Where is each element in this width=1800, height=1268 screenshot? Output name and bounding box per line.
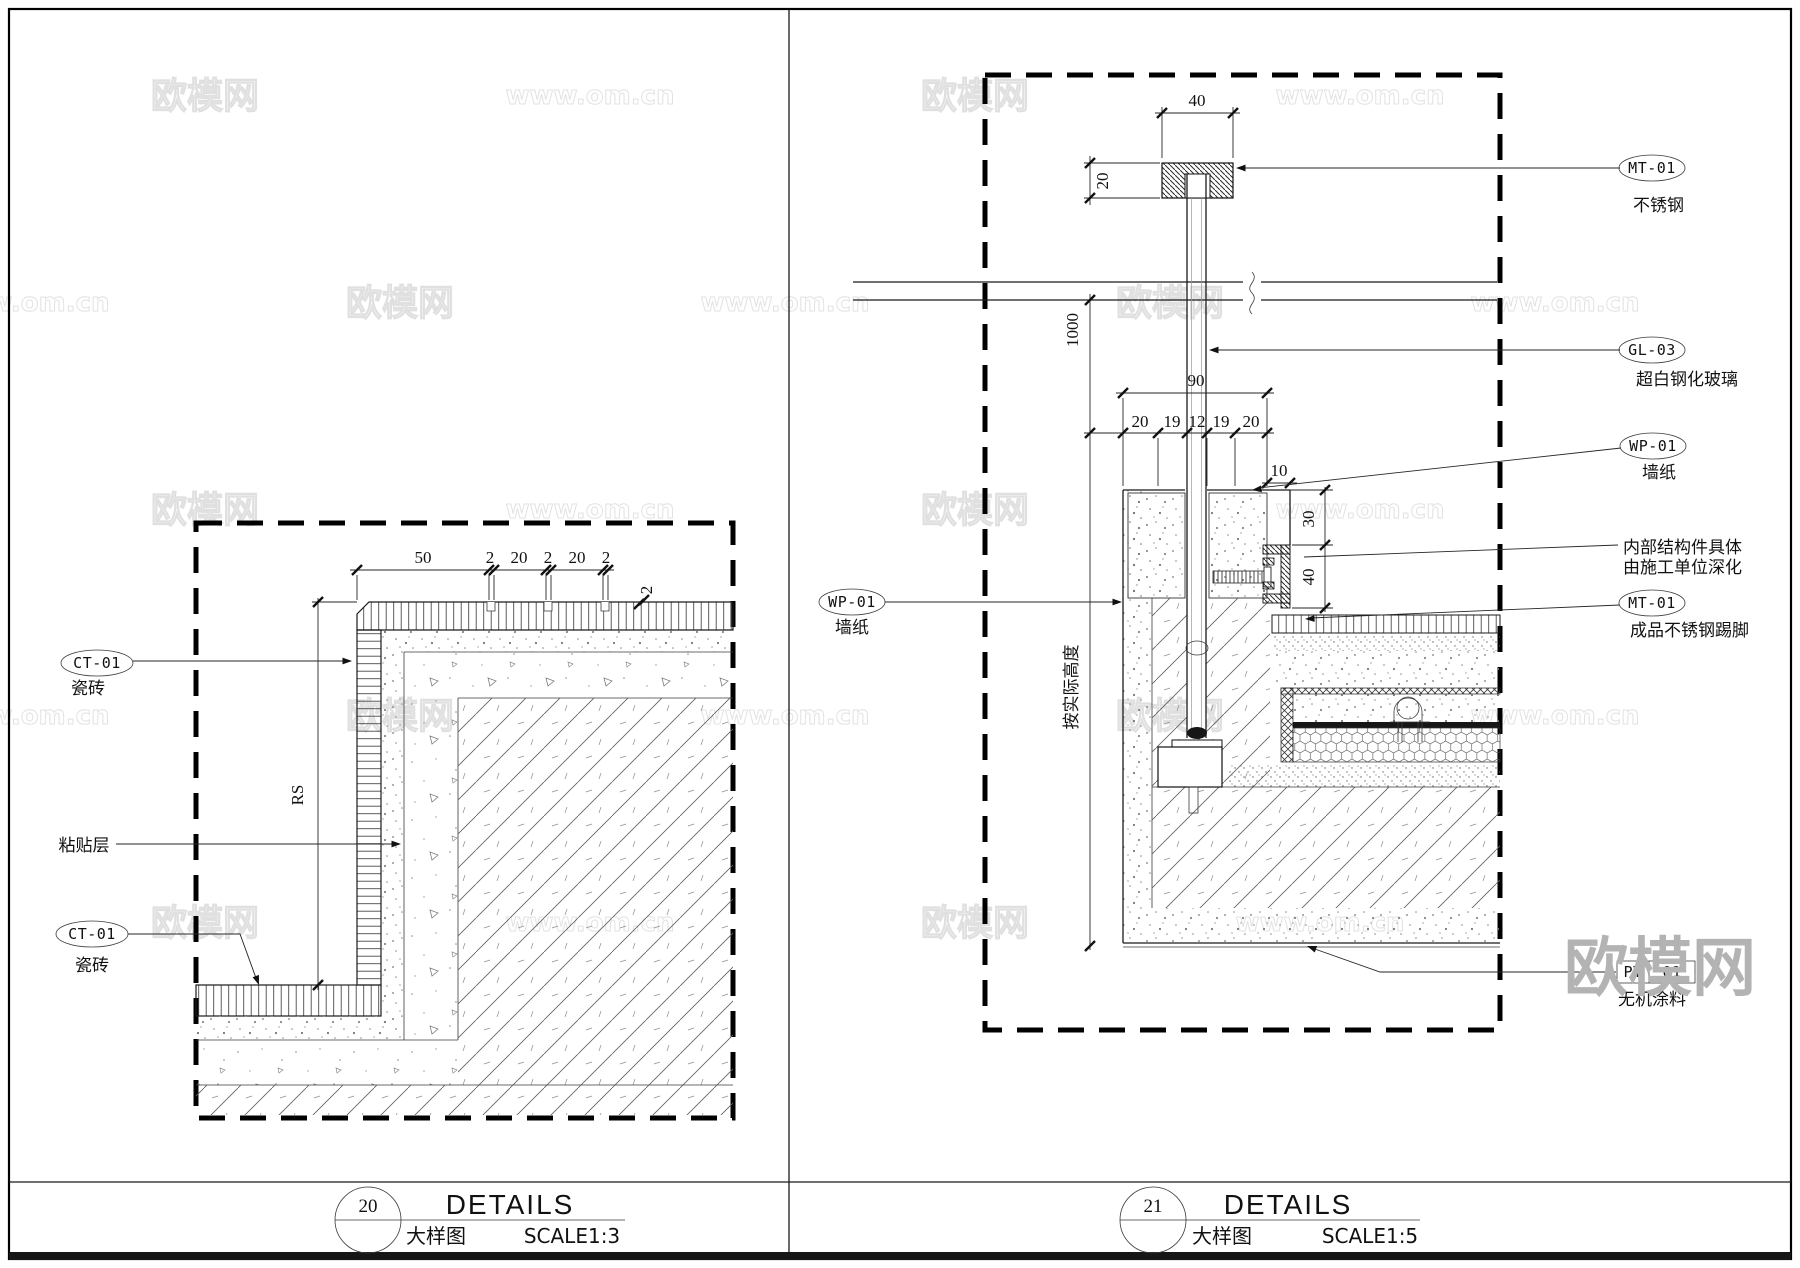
watermark-brand: 欧模网 (921, 490, 1029, 531)
titleblock-20: 20 DETAILS 大样图 SCALE1:3 (335, 1187, 625, 1253)
structure-hatch (458, 698, 733, 1085)
callout-code: GL-03 (1628, 341, 1676, 359)
substrate-band-bottom (196, 1040, 458, 1085)
membrane-edge-strip (1281, 688, 1293, 762)
sand-cushion-band (1228, 765, 1500, 787)
detail-number: 21 (1144, 1196, 1163, 1217)
dim-c4: 19 (1213, 412, 1230, 431)
detail-20-corner-tile: 50 2 20 2 20 2 2 RS CT-01 瓷砖 (56, 523, 733, 1118)
detail-scale: SCALE1:3 (524, 1224, 620, 1248)
callout-wp01-right: WP-01 墙纸 (1252, 433, 1686, 493)
tile-side-strip (357, 630, 381, 985)
dim-cap-height: 20 (1093, 173, 1112, 190)
brand-logo: 欧模网 (1564, 932, 1756, 1006)
dim-chain-top: 50 2 20 2 20 2 2 (350, 548, 656, 609)
dim-10: 10 (1271, 461, 1288, 480)
callout-code: WP-01 (828, 593, 876, 611)
callout-code: MT-01 (1628, 159, 1676, 177)
tile-bottom-strip (196, 985, 381, 1016)
dim-actual-height: 按实际高度 (1062, 645, 1082, 730)
callout-code: WP-01 (1629, 437, 1677, 455)
detail-title: DETAILS (446, 1189, 575, 1220)
dim-40: 40 (1299, 569, 1318, 586)
dim-2: 2 (486, 548, 495, 567)
skirting-strip (1272, 615, 1500, 633)
watermark-brand: 欧模网 (151, 903, 259, 944)
watermark-brand: 欧模网 (346, 283, 454, 324)
callout-name: 瓷砖 (75, 956, 109, 976)
dim-c2: 19 (1164, 412, 1181, 431)
dim-cap-width: 40 (1189, 91, 1206, 110)
membrane-top-band (1281, 688, 1500, 694)
detail-21-glass-partition: 40 20 1000 按实际高度 90 (819, 75, 1749, 1030)
dim-c1: 20 (1132, 412, 1149, 431)
structure-hatch-bottom (196, 1085, 733, 1115)
callout-code: MT-01 (1628, 594, 1676, 612)
structure-under-floor (1152, 787, 1500, 908)
watermark-brand: 欧模网 (1116, 283, 1224, 324)
note-line1: 内部结构件具体 (1623, 538, 1742, 558)
dim-1000: 1000 (1063, 313, 1082, 347)
watermark-site: www.om.cn (1275, 81, 1444, 111)
callout-internal-note: 内部结构件具体 由施工单位深化 (1304, 538, 1742, 578)
callout-name: 粘贴层 (59, 836, 110, 856)
detail-title: DETAILS (1224, 1189, 1353, 1220)
titleblock-21: 21 DETAILS 大样图 SCALE1:5 (1120, 1187, 1420, 1253)
detail-subtitle: 大样图 (406, 1224, 466, 1248)
callout-adhesive: 粘贴层 (59, 836, 402, 856)
base-shoe-block (1158, 747, 1222, 787)
leveling-band (1272, 633, 1500, 651)
callout-name: 墙纸 (835, 618, 869, 638)
dim-2: 2 (544, 548, 553, 567)
watermark-brand: 欧模网 (921, 903, 1029, 944)
waterproof-band (1293, 722, 1500, 728)
detail-scale: SCALE1:5 (1322, 1224, 1418, 1248)
detail-number: 20 (359, 1196, 378, 1217)
callout-code: CT-01 (73, 654, 121, 672)
dim-tile-thickness: 2 (637, 586, 656, 595)
sealant-pad (1187, 727, 1207, 739)
callout-name: 瓷砖 (71, 679, 105, 699)
adhesive-layer-side (381, 630, 404, 1040)
watermark-brand: 欧模网 (921, 76, 1029, 117)
base-plate (1172, 740, 1222, 747)
threaded-anchor (1213, 571, 1265, 583)
pocket-block-left (1128, 493, 1185, 598)
adhesive-layer-bottom (196, 1016, 404, 1040)
watermark-site: www.om.cn (505, 81, 674, 111)
dim-2: 2 (602, 548, 611, 567)
dim-30: 30 (1299, 511, 1318, 528)
dim-50: 50 (415, 548, 432, 567)
substrate-band-top (404, 652, 733, 698)
watermark-site: www.om.cn (700, 288, 869, 318)
callout-ct01-top: CT-01 瓷砖 (61, 650, 352, 699)
callout-name: 超白钢化玻璃 (1636, 370, 1738, 390)
dim-c3: 12 (1189, 412, 1206, 431)
callout-name: 墙纸 (1642, 463, 1676, 483)
top-cap (1162, 163, 1233, 198)
drawing-canvas: 欧模网 www.om.cn 欧模网 www.om.cn www.om.cn 欧模… (0, 0, 1800, 1268)
watermark-site: www.om.cn (0, 701, 110, 731)
callout-name: 成品不锈钢踢脚 (1630, 621, 1749, 641)
cad-sheet: 欧模网 www.om.cn 欧模网 www.om.cn www.om.cn 欧模… (0, 0, 1800, 1268)
screed-band (1272, 651, 1500, 688)
substrate-band-side (404, 698, 458, 1040)
callout-wp01-left: WP-01 墙纸 (819, 589, 1122, 638)
watermark-brand: 欧模网 (151, 76, 259, 117)
callout-name: 不锈钢 (1633, 196, 1684, 216)
detail-subtitle: 大样图 (1192, 1224, 1252, 1248)
floor-wrap-band (1152, 908, 1500, 943)
watermark-site: www.om.cn (1470, 288, 1639, 318)
dim-90: 90 (1188, 371, 1205, 390)
dim-20: 20 (569, 548, 586, 567)
dim-20: 20 (511, 548, 528, 567)
callout-mt01-top: MT-01 不锈钢 (1236, 155, 1685, 216)
insulation-honeycomb (1293, 728, 1500, 762)
callout-gl03: GL-03 超白钢化玻璃 (1209, 337, 1738, 390)
callout-code: CT-01 (68, 925, 116, 943)
adhesive-layer-top (381, 630, 733, 652)
watermark-site: www.om.cn (0, 288, 110, 318)
dim-rs-label: RS (288, 785, 307, 806)
note-line2: 由施工单位深化 (1623, 558, 1742, 578)
fill-band (1293, 694, 1500, 722)
titlebar-heavy-line (9, 1252, 1791, 1260)
dim-c5: 20 (1243, 412, 1260, 431)
